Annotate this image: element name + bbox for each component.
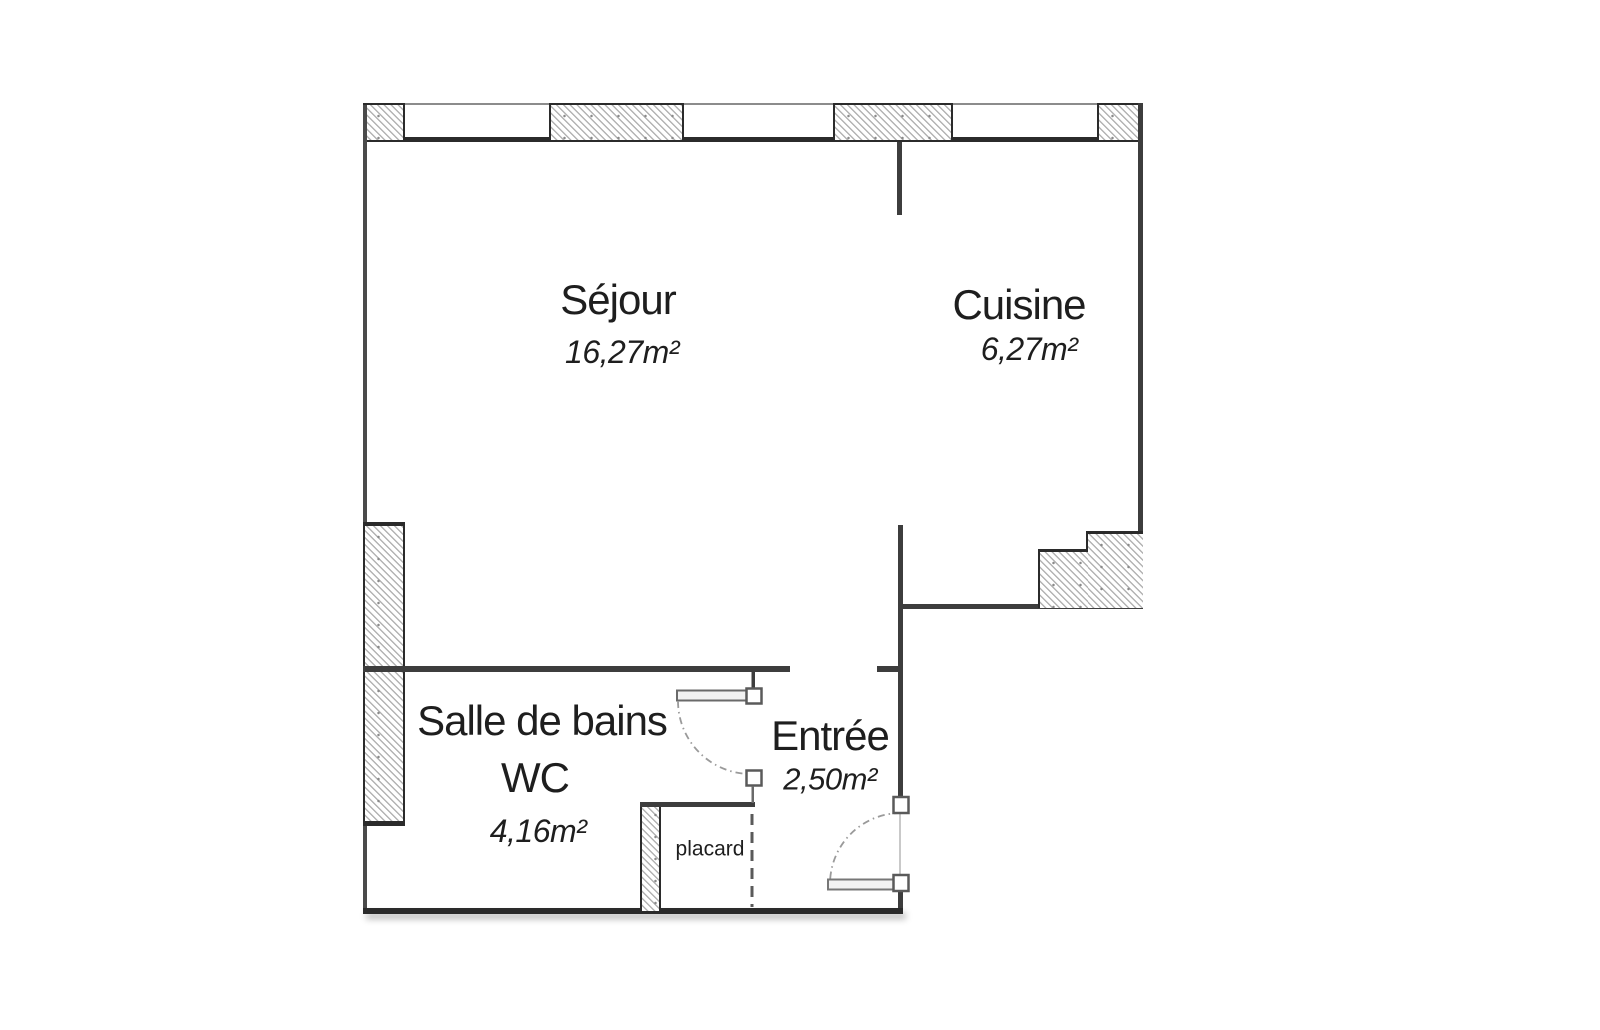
front-door <box>828 797 909 891</box>
front-door-top-square <box>894 797 909 813</box>
room-label-wc: WC <box>501 757 569 799</box>
room-label-sejour: Séjour <box>560 279 675 321</box>
room-label-cuisine: Cuisine <box>952 284 1085 326</box>
bathroom-door-jamb-stub <box>752 671 756 690</box>
floor-plan: Séjour 16,27m² Cuisine 6,27m² Salle de b… <box>0 0 1600 1030</box>
bathroom-door <box>677 671 762 803</box>
bathroom-door-connector <box>752 786 755 803</box>
front-door-swing-arc <box>830 813 901 884</box>
room-label-entree: Entrée <box>771 715 889 757</box>
bathroom-door-leaf <box>677 691 749 701</box>
room-area-sejour: 16,27m² <box>565 336 679 368</box>
bathroom-door-swing-arc <box>678 701 751 774</box>
room-area-entree: 2,50m² <box>783 764 876 795</box>
front-door-hinge-square <box>894 875 909 891</box>
bathroom-door-hinge-square <box>747 689 762 704</box>
doors-overlay <box>0 0 1600 1030</box>
bathroom-door-strike-square <box>747 771 762 786</box>
room-label-placard: placard <box>676 839 745 860</box>
room-area-salle-de-bains: 4,16m² <box>490 815 587 847</box>
front-door-leaf <box>828 880 898 890</box>
room-label-salle-de-bains: Salle de bains <box>417 700 667 742</box>
room-area-cuisine: 6,27m² <box>981 333 1078 365</box>
